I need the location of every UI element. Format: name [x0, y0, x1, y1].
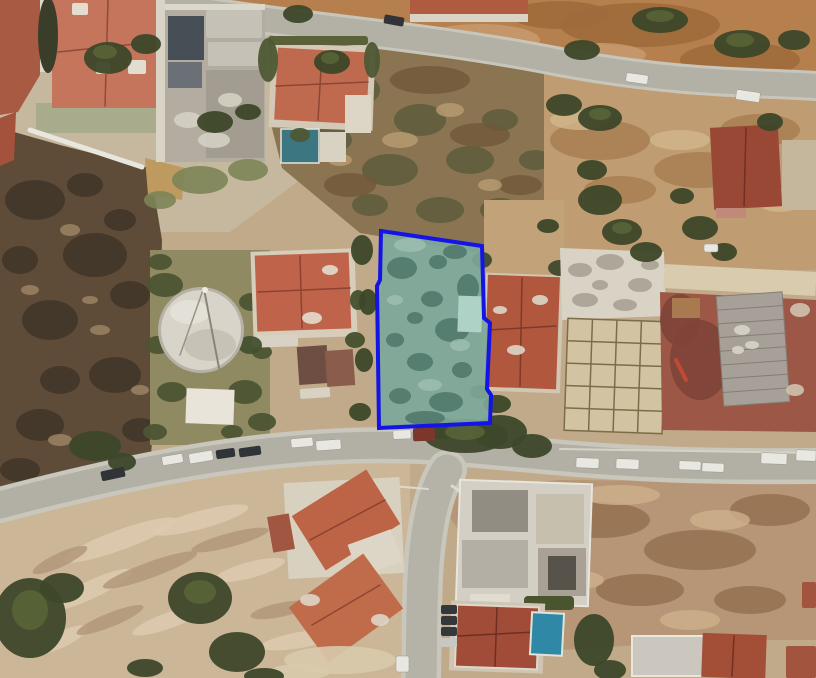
- parcel-vegetation: [386, 333, 404, 347]
- house-d-dots: [322, 265, 338, 275]
- hillside-shadows: [5, 180, 65, 220]
- cars-white: [616, 459, 639, 470]
- house-b-patio: [345, 95, 371, 133]
- wall-top-edge: [410, 14, 528, 22]
- house-e-dots: [507, 345, 525, 355]
- cars-white: [291, 437, 314, 448]
- scrub-light-specks: [478, 179, 502, 191]
- se-dirt-light: [690, 510, 750, 530]
- yard-green-blobs: [144, 191, 176, 209]
- house-e-dots: [532, 295, 548, 305]
- parcel-vegetation: [443, 245, 467, 259]
- ribbed-roof-dots: [732, 346, 744, 354]
- tree-clumps: [537, 219, 559, 233]
- tank-grounds-trees: [148, 254, 172, 270]
- tree-clumps: [127, 659, 163, 677]
- tree-clumps: [131, 34, 161, 54]
- roof-nw-dormers: [72, 3, 88, 15]
- cars-white: [679, 461, 701, 471]
- hillside-shadows: [22, 300, 78, 340]
- cars-white: [796, 450, 816, 462]
- tank-grounds-trees: [221, 425, 243, 439]
- house-b-shrubs: [364, 42, 380, 78]
- gray-complex-panel2: [168, 62, 202, 88]
- house-b-shrubs: [258, 38, 278, 82]
- cars-white: [704, 244, 718, 252]
- courtyard-shed: [672, 298, 700, 318]
- east-field-light: [650, 130, 710, 150]
- rocky-speckles: [596, 254, 624, 270]
- tree-highlights: [184, 580, 216, 604]
- se-edge-roofs: [786, 646, 816, 678]
- tree-clumps: [359, 289, 377, 315]
- house-d-terrace: [300, 387, 331, 399]
- hillside-highlights: [60, 224, 80, 236]
- se-dirt-dark: [714, 586, 786, 614]
- house-d-trees: [345, 332, 365, 348]
- hillside-shadows: [110, 281, 150, 309]
- parcel-vegetation-light: [418, 379, 442, 391]
- parcel-vegetation: [389, 388, 411, 404]
- yard-green-blobs: [228, 159, 268, 181]
- sw-house-trim: [300, 594, 320, 606]
- parcel-structure: [457, 296, 482, 333]
- hillside-shadows: [104, 209, 136, 231]
- scrub-brown-patches: [390, 66, 470, 94]
- parcel-vegetation: [407, 312, 423, 324]
- parked-cars-dark-column: [441, 605, 457, 614]
- hillside-shadows: [67, 173, 103, 197]
- rocky-speckles: [628, 278, 652, 292]
- hillside-shadows: [40, 366, 80, 394]
- tree-clumps: [670, 188, 694, 204]
- tree-clumps: [355, 348, 373, 372]
- tree-clumps: [682, 216, 718, 240]
- scrub-brown-patches: [450, 123, 510, 147]
- se-dirt-light: [660, 610, 720, 630]
- parcel-vegetation: [429, 255, 447, 269]
- tree-highlights: [12, 590, 48, 630]
- tree-highlights: [612, 222, 632, 234]
- se-dirt-dark: [596, 574, 684, 606]
- rocky-speckles: [592, 280, 608, 290]
- tree-clumps: [630, 242, 662, 262]
- courtyard-dots: [790, 303, 810, 317]
- parked-car-silver: [441, 638, 457, 647]
- rocky-speckles: [568, 263, 592, 277]
- tree-clumps: [283, 5, 313, 23]
- cars-white: [396, 656, 409, 672]
- tree-clumps: [209, 632, 265, 672]
- water-tank-hilite: [170, 300, 210, 324]
- parcel-vegetation: [407, 353, 433, 371]
- house-b-deck: [320, 132, 346, 162]
- tree-clumps: [778, 30, 810, 50]
- scrub-dark-veg: [352, 194, 388, 216]
- house-d-dots: [302, 312, 322, 324]
- se-edge-roofs: [802, 582, 816, 608]
- hillside-shadows: [63, 233, 127, 277]
- swimming-pool: [530, 612, 564, 656]
- parcel-vegetation: [421, 291, 443, 307]
- tree-clumps: [578, 185, 622, 215]
- house-e-dots: [493, 306, 507, 314]
- tree-clumps: [40, 573, 84, 603]
- hillside-highlights: [21, 285, 39, 295]
- parcel-vegetation-light: [450, 339, 470, 351]
- gray-complex-rim: [165, 4, 265, 10]
- satellite-image[interactable]: [0, 0, 816, 678]
- house-d-ext-dark: [297, 345, 330, 385]
- courtyard-dots: [786, 384, 804, 396]
- water-tank-shade: [184, 329, 236, 361]
- gray-complex-dots: [218, 93, 242, 107]
- hillside-highlights: [48, 434, 72, 446]
- tree-clumps: [564, 40, 600, 60]
- villa-roof-3: [536, 494, 584, 544]
- tank-shed: [185, 388, 234, 425]
- hillside-highlights: [90, 325, 110, 335]
- cars-white: [316, 439, 342, 451]
- ribbed-roof-dots: [734, 325, 750, 335]
- tree-nw-column: [38, 0, 58, 73]
- villa-roof-1: [472, 490, 528, 532]
- tree-highlights: [93, 45, 117, 59]
- house-ne-terrace: [716, 208, 746, 218]
- house-b-hedge: [268, 36, 368, 45]
- scrub-dark-veg: [416, 197, 464, 223]
- hillside-highlights: [131, 385, 149, 395]
- parcel-vegetation-light: [387, 295, 403, 305]
- sw-house-trim: [371, 614, 389, 626]
- water-tank-hatch: [202, 287, 208, 293]
- gray-complex-dots: [198, 132, 230, 148]
- scrub-brown-patches: [324, 173, 376, 197]
- house-ne-yard: [782, 140, 816, 210]
- scrub-light-specks: [436, 103, 464, 117]
- villa-windows: [548, 556, 576, 590]
- house-b-shrubs: [290, 128, 310, 142]
- wall-nw-white-2: [156, 0, 165, 162]
- tree-highlights: [589, 108, 611, 120]
- tank-grounds-trees: [143, 424, 167, 440]
- tree-clumps: [577, 160, 607, 180]
- parcel-vegetation-light: [394, 238, 426, 252]
- tree-clumps: [349, 403, 371, 421]
- villa-roof-2: [462, 540, 528, 588]
- yard-green-blobs: [172, 166, 228, 194]
- parcel-vegetation: [429, 392, 463, 412]
- scrub-brown-patches: [498, 175, 542, 195]
- pool-side-trees: [574, 614, 614, 666]
- house-d-ext-brown: [325, 349, 355, 387]
- cars-white: [576, 458, 599, 469]
- parcel-vegetation: [452, 362, 472, 378]
- scrub-light-specks: [382, 132, 418, 148]
- rocky-speckles: [572, 293, 598, 307]
- tree-clumps: [235, 104, 261, 120]
- ribbed-roof-dots: [745, 341, 759, 349]
- roof-west-small: [0, 112, 16, 166]
- hillside-highlights: [82, 296, 98, 304]
- cars-white: [393, 430, 411, 440]
- gray-complex-light: [206, 10, 262, 38]
- hillside-shadows: [2, 246, 38, 274]
- rocky-speckles: [613, 299, 637, 311]
- tank-grounds-trees: [157, 382, 187, 402]
- roof-top-edge: [410, 0, 528, 14]
- gray-complex-panels: [168, 16, 204, 60]
- parked-cars-dark-column: [441, 627, 457, 636]
- tree-clumps: [351, 235, 373, 265]
- cars-white: [702, 463, 724, 473]
- parcel-vegetation: [405, 411, 445, 425]
- tree-highlights: [726, 33, 754, 47]
- tank-grounds-trees: [147, 273, 183, 297]
- car-darkred: [413, 428, 435, 442]
- tree-clumps: [512, 434, 552, 458]
- map-viewport[interactable]: [0, 0, 816, 678]
- se-dirt-dark: [644, 530, 756, 570]
- tank-grounds-trees: [248, 413, 276, 431]
- gray-complex-light: [208, 42, 262, 66]
- scrub-dark-veg: [446, 146, 494, 174]
- cars-white: [761, 453, 787, 465]
- tree-highlights: [646, 10, 674, 22]
- tree-clumps: [757, 113, 783, 131]
- tree-clumps: [546, 94, 582, 116]
- parked-cars-dark-column: [441, 616, 457, 625]
- tree-clumps: [197, 111, 233, 133]
- parcel-vegetation: [387, 257, 417, 279]
- tree-highlights: [321, 52, 339, 64]
